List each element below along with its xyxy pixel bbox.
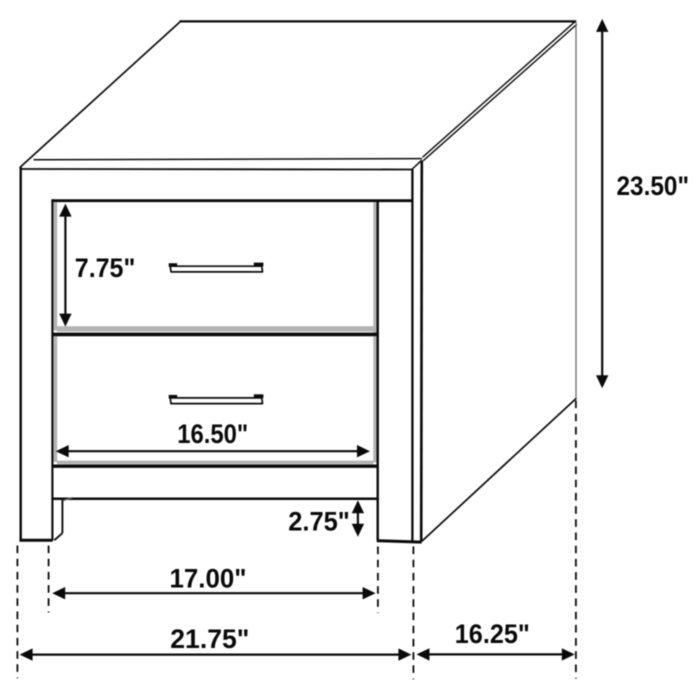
svg-text:16.25": 16.25" xyxy=(455,619,530,649)
svg-text:21.75": 21.75" xyxy=(170,624,249,654)
svg-text:17.00": 17.00" xyxy=(170,563,247,593)
svg-text:23.50": 23.50" xyxy=(617,171,690,201)
svg-text:7.75": 7.75" xyxy=(75,253,136,283)
svg-text:16.50": 16.50" xyxy=(177,419,248,449)
svg-text:2.75": 2.75" xyxy=(288,507,350,537)
